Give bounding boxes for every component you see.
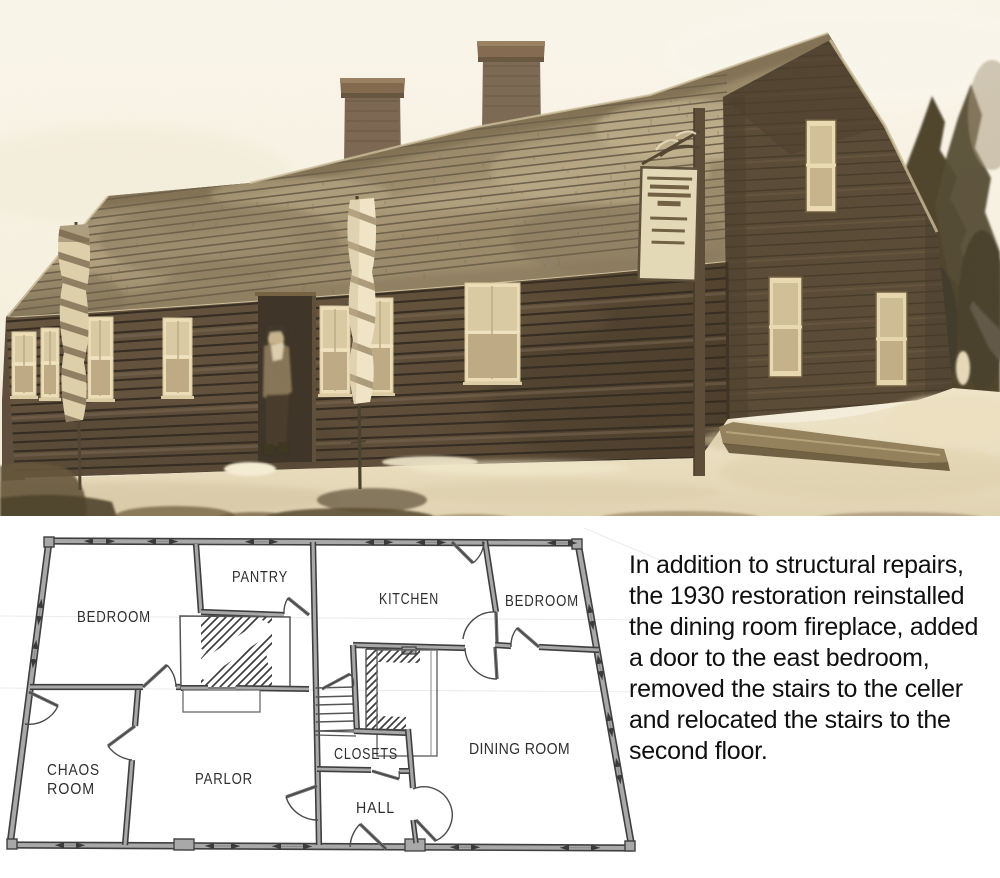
svg-text:BEDROOM: BEDROOM — [77, 609, 151, 626]
svg-text:ROOM: ROOM — [47, 781, 95, 798]
svg-text:PANTRY: PANTRY — [232, 569, 288, 586]
svg-text:CLOSETS: CLOSETS — [334, 746, 398, 763]
svg-text:HALL: HALL — [356, 800, 395, 817]
svg-text:BEDROOM: BEDROOM — [505, 593, 579, 610]
svg-text:CHAOS: CHAOS — [47, 762, 100, 779]
svg-text:KITCHEN: KITCHEN — [379, 591, 439, 608]
svg-text:DINING ROOM: DINING ROOM — [469, 741, 570, 758]
svg-text:PARLOR: PARLOR — [195, 771, 253, 788]
